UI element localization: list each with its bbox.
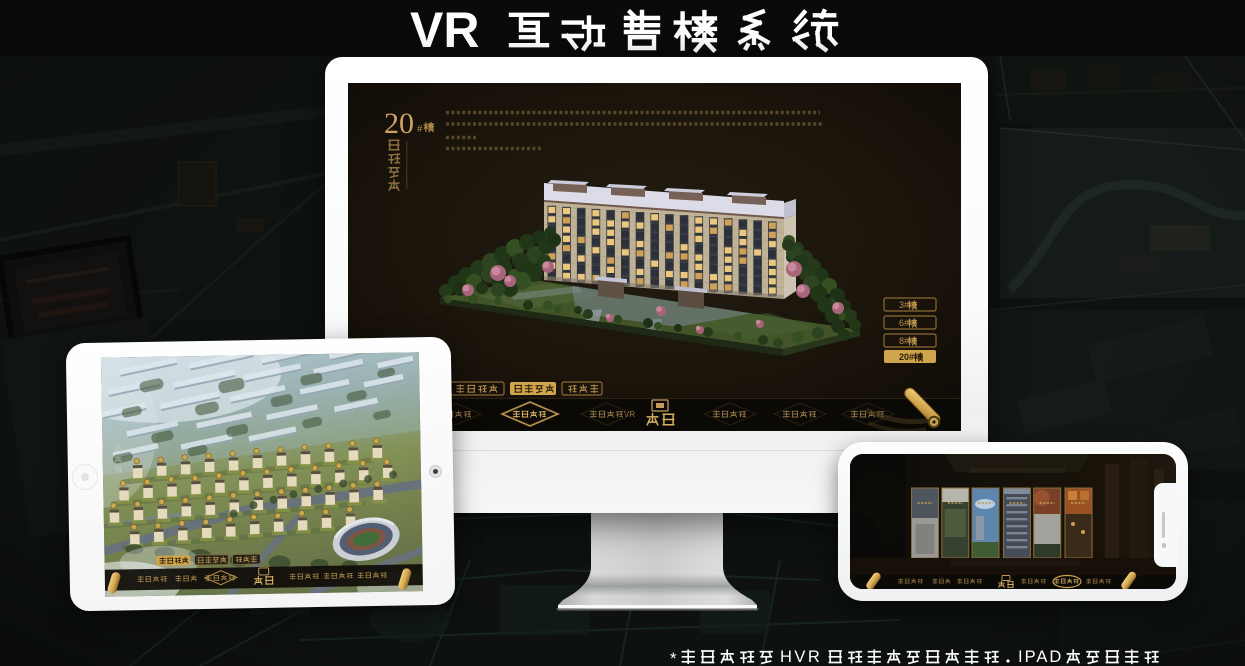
svg-text:HVR: HVR [780, 648, 822, 666]
svg-text:IPAD: IPAD [1018, 648, 1063, 666]
svg-text:*: * [670, 649, 677, 666]
